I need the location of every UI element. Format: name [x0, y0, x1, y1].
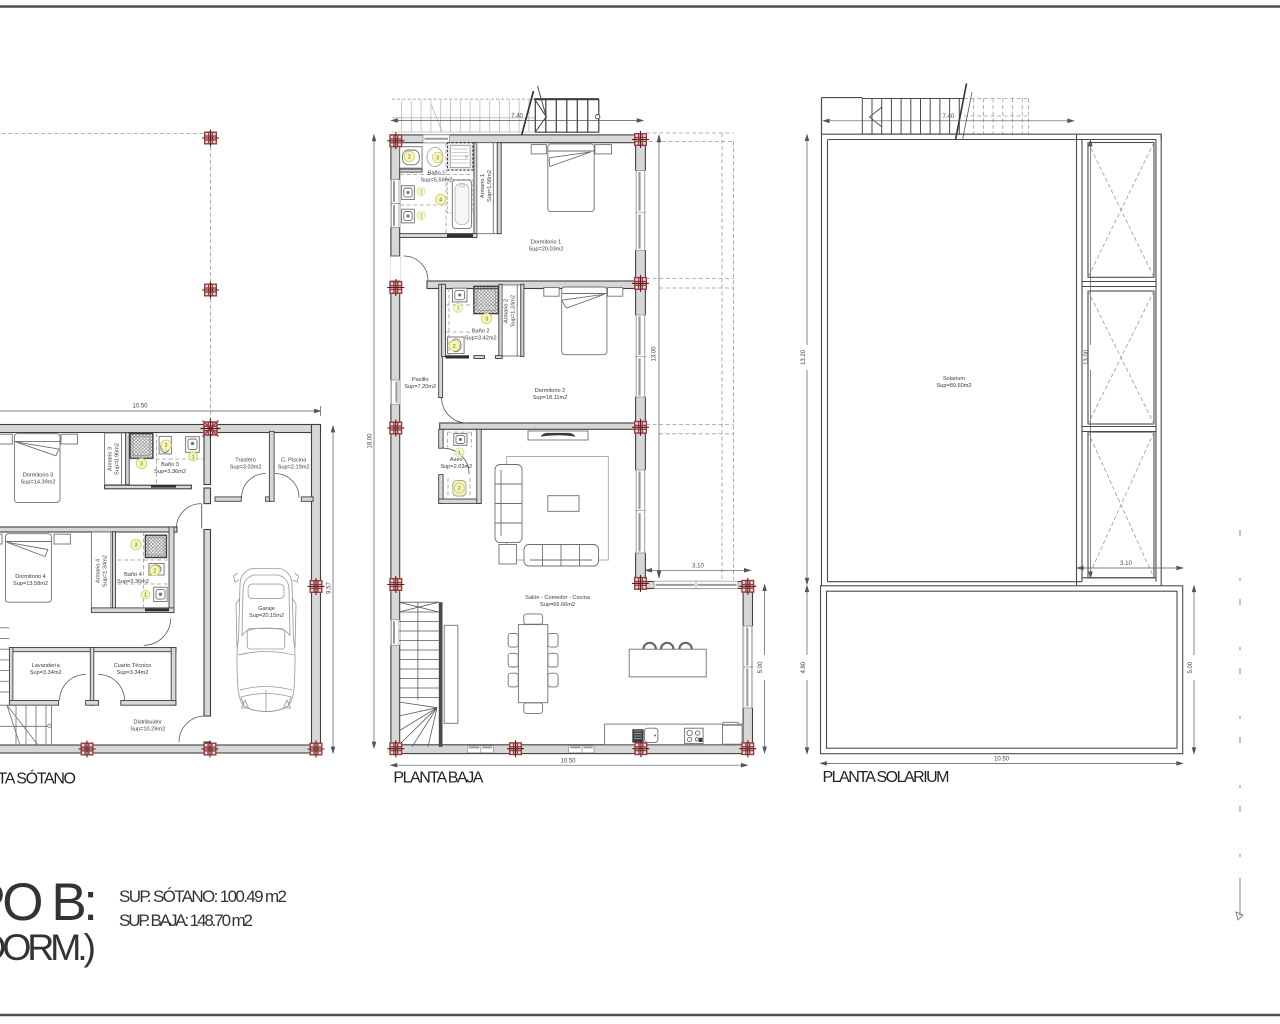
svg-text:Sup=1.56m2: Sup=1.56m2: [487, 170, 493, 202]
svg-text:Dormitorio 4: Dormitorio 4: [15, 574, 45, 580]
svg-text:Sup=2.03m2: Sup=2.03m2: [440, 464, 472, 470]
svg-text:PLANTA BAJA: PLANTA BAJA: [393, 770, 483, 787]
svg-text:Sup=10.29m2: Sup=10.29m2: [130, 727, 165, 733]
svg-text:2: 2: [153, 568, 156, 574]
svg-text:Sup=0.90m2: Sup=0.90m2: [115, 443, 121, 475]
svg-text:3: 3: [436, 155, 439, 161]
svg-text:Armario 3: Armario 3: [108, 447, 114, 471]
svg-text:Lavandería: Lavandería: [32, 663, 61, 669]
svg-text:3: 3: [485, 317, 488, 323]
svg-text:Garaje: Garaje: [258, 606, 275, 612]
svg-text:3: 3: [135, 543, 138, 549]
svg-text:Baño 1: Baño 1: [428, 171, 446, 177]
svg-text:5.00: 5.00: [1188, 661, 1194, 673]
svg-text:7.40: 7.40: [942, 114, 954, 120]
svg-text:SUP. BAJA: 148.70 m2: SUP. BAJA: 148.70 m2: [119, 911, 253, 930]
svg-text:Baño 2: Baño 2: [472, 329, 490, 335]
svg-text:Sup=66.66m2: Sup=66.66m2: [540, 602, 575, 608]
svg-text:Sup=3.36m2: Sup=3.36m2: [117, 579, 149, 585]
svg-text:1: 1: [420, 214, 423, 220]
svg-text:Sup=18.11m2: Sup=18.11m2: [533, 395, 568, 401]
svg-text:1: 1: [457, 306, 460, 312]
svg-text:2: 2: [453, 344, 456, 350]
svg-text:Armario 2: Armario 2: [503, 299, 509, 323]
svg-text:Trastero: Trastero: [235, 458, 256, 464]
svg-text:Sup=1.24m2: Sup=1.24m2: [511, 295, 517, 327]
svg-text:Sup=20.15m2: Sup=20.15m2: [249, 613, 284, 619]
svg-text:Baño 3: Baño 3: [161, 462, 179, 468]
svg-text:Sup=5.59m2: Sup=5.59m2: [421, 178, 453, 184]
svg-text:Sup=13.58m2: Sup=13.58m2: [13, 581, 48, 587]
svg-text:10.50: 10.50: [132, 404, 148, 410]
svg-text:Sup=2.19m2: Sup=2.19m2: [278, 465, 310, 471]
svg-text:3.10: 3.10: [1120, 561, 1132, 567]
svg-text:9.57: 9.57: [327, 582, 333, 594]
svg-text:Dormitorio 1: Dormitorio 1: [531, 240, 561, 246]
svg-text:Armario 4: Armario 4: [96, 559, 102, 583]
svg-text:7.40: 7.40: [511, 114, 523, 120]
svg-text:C. Piscina: C. Piscina: [281, 458, 307, 464]
svg-text:13.20: 13.20: [801, 349, 807, 365]
svg-text:18.00: 18.00: [368, 433, 374, 449]
svg-text:(2 DORM.): (2 DORM.): [0, 926, 96, 968]
svg-text:Distribuidor: Distribuidor: [134, 720, 162, 726]
svg-text:Sup=20.03m2: Sup=20.03m2: [529, 247, 564, 253]
svg-text:4.80: 4.80: [801, 661, 807, 673]
svg-text:Baño 4: Baño 4: [124, 572, 142, 578]
svg-text:2: 2: [408, 154, 411, 160]
svg-text:SUP. SÓTANO: 100.49 m2: SUP. SÓTANO: 100.49 m2: [119, 887, 287, 906]
svg-text:1: 1: [192, 454, 195, 460]
svg-text:3.10: 3.10: [692, 563, 704, 569]
svg-text:2: 2: [165, 443, 168, 449]
svg-text:10.50: 10.50: [560, 758, 576, 764]
svg-text:13.00: 13.00: [652, 346, 658, 362]
svg-text:4: 4: [439, 197, 442, 203]
svg-text:Sup=7.20m2: Sup=7.20m2: [404, 384, 436, 390]
svg-text:PLANTA SÓTANO: PLANTA SÓTANO: [0, 769, 76, 788]
svg-text:3: 3: [140, 462, 143, 468]
svg-text:Solarium: Solarium: [943, 376, 965, 382]
svg-text:Sup=3.03m2: Sup=3.03m2: [230, 465, 262, 471]
svg-text:1: 1: [420, 190, 423, 196]
svg-text:Cuarto Técnico: Cuarto Técnico: [114, 663, 152, 669]
svg-text:Dormitorio 3: Dormitorio 3: [23, 473, 53, 479]
svg-text:1: 1: [144, 593, 147, 599]
svg-text:Aseo: Aseo: [450, 457, 463, 463]
svg-text:13.00: 13.00: [1084, 349, 1090, 365]
svg-text:5.00: 5.00: [758, 661, 764, 673]
svg-text:10.50: 10.50: [994, 756, 1010, 762]
svg-text:Sup=14.39m2: Sup=14.39m2: [21, 480, 56, 486]
svg-text:Dormitorio 2: Dormitorio 2: [535, 388, 565, 394]
svg-text:Sup=1.34m2: Sup=1.34m2: [103, 555, 109, 587]
svg-text:2: 2: [458, 486, 461, 492]
svg-text:Sup=3.34m2: Sup=3.34m2: [117, 670, 149, 676]
svg-text:1: 1: [458, 451, 461, 457]
svg-text:TIPO B:: TIPO B:: [0, 873, 98, 932]
svg-text:Sup=3.42m2: Sup=3.42m2: [465, 336, 497, 342]
svg-text:Salón - Comedor - Cocina: Salón - Comedor - Cocina: [525, 595, 591, 601]
svg-text:Sup=89.60m2: Sup=89.60m2: [937, 383, 972, 389]
svg-text:Sup=3.34m2: Sup=3.34m2: [30, 670, 62, 676]
svg-text:Armario 1: Armario 1: [480, 174, 486, 198]
svg-text:PLANTA SOLARIUM: PLANTA SOLARIUM: [823, 769, 950, 786]
svg-text:Pasillo: Pasillo: [412, 377, 428, 383]
svg-text:Sup=3.36m2: Sup=3.36m2: [154, 469, 186, 475]
